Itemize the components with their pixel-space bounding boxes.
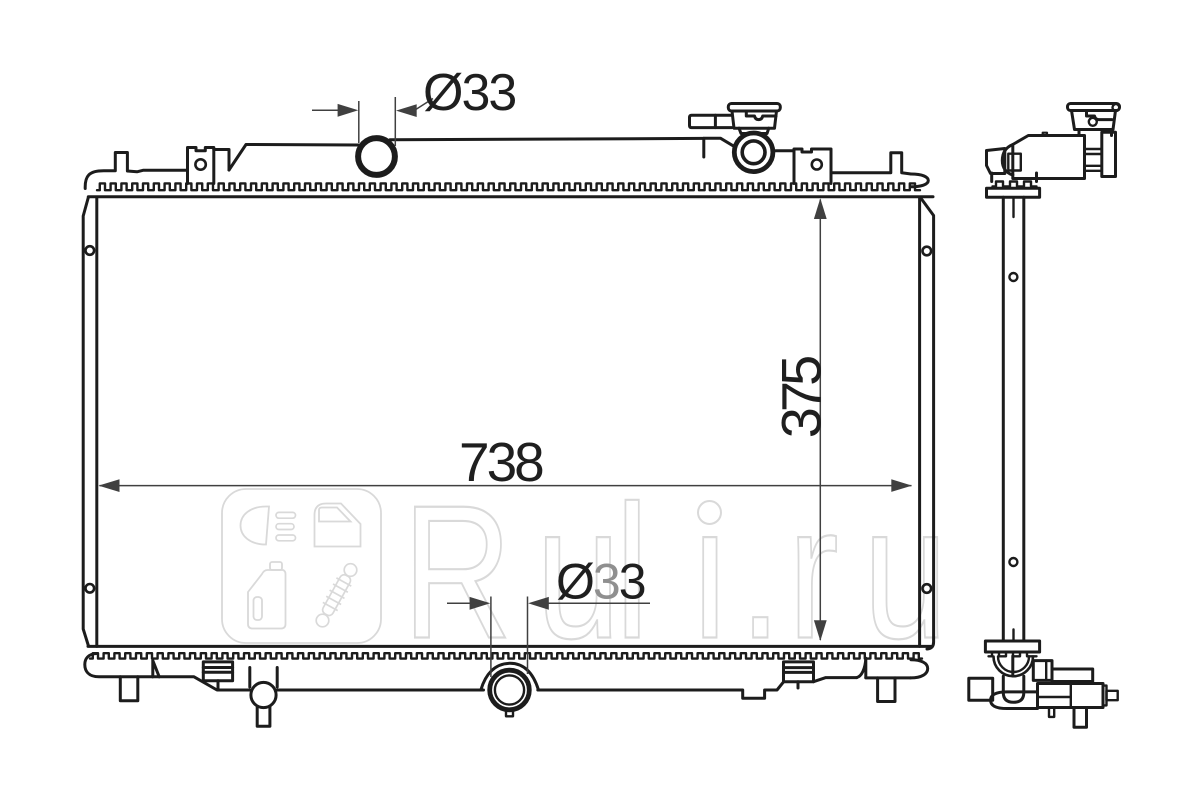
svg-text:Ø33: Ø33 bbox=[423, 64, 515, 122]
svg-text:Ø33: Ø33 bbox=[556, 554, 645, 610]
svg-text:375: 375 bbox=[770, 357, 833, 438]
svg-text:738: 738 bbox=[459, 431, 543, 493]
